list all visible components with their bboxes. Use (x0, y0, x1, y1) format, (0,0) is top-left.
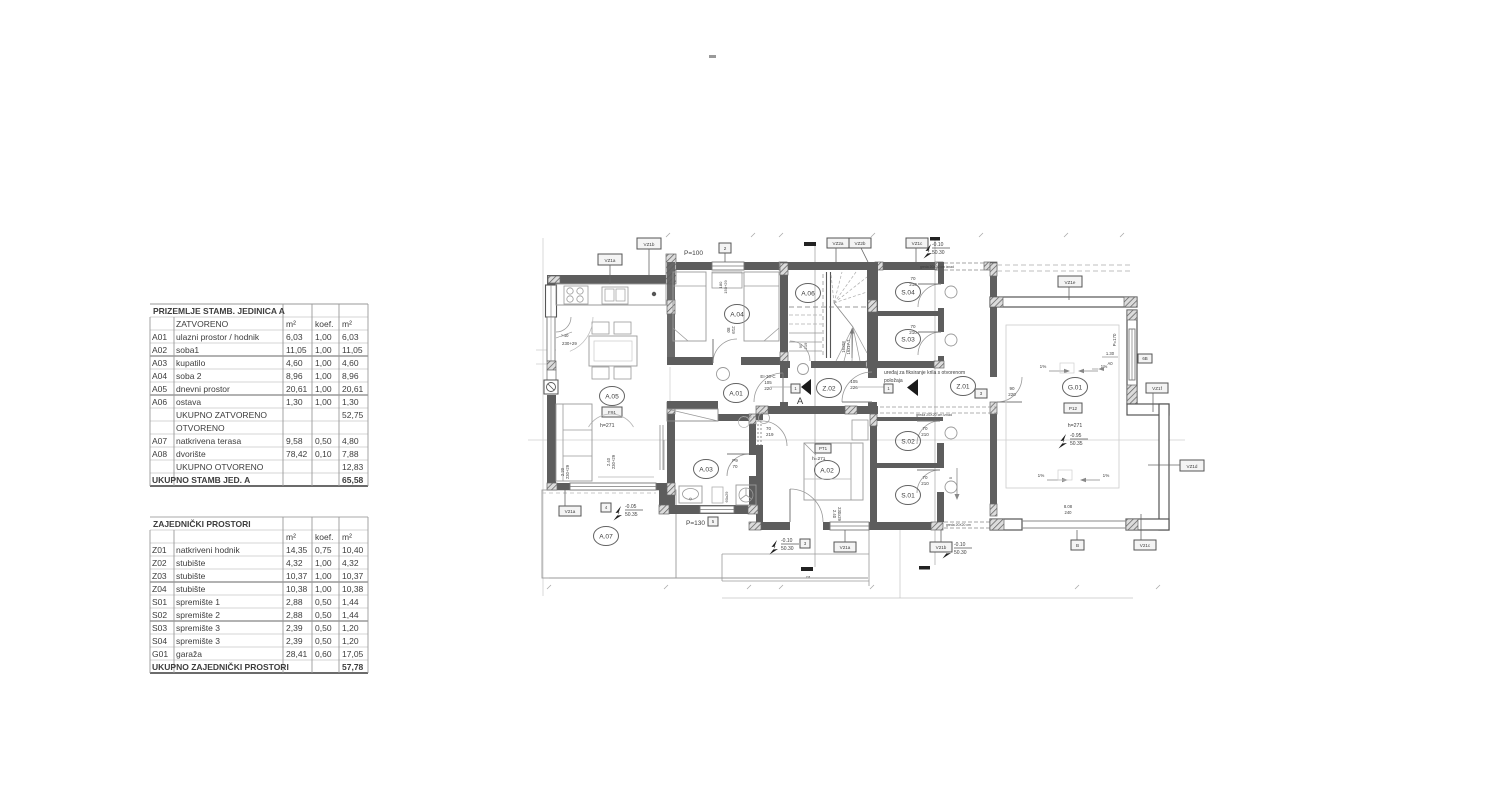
svg-text:10,38: 10,38 (286, 584, 308, 594)
svg-text:10,40: 10,40 (342, 545, 364, 555)
svg-text:220: 220 (1008, 392, 1016, 397)
svg-text:dvorište: dvorište (176, 449, 206, 459)
svg-text:0,50: 0,50 (315, 597, 332, 607)
svg-text:50.30: 50.30 (954, 550, 967, 556)
svg-text:Z.02: Z.02 (822, 385, 836, 392)
svg-text:garaža: garaža (176, 649, 202, 659)
svg-text:spremište 2: spremište 2 (176, 610, 220, 620)
svg-text:1,00: 1,00 (315, 332, 332, 342)
svg-text:65,58: 65,58 (342, 475, 364, 485)
svg-text:spremište 3: spremište 3 (176, 623, 220, 633)
svg-text:6B: 6B (1142, 356, 1147, 361)
svg-text:70: 70 (922, 475, 928, 480)
svg-text:VZ1d: VZ1d (1187, 464, 1198, 469)
svg-text:1,00: 1,00 (315, 345, 332, 355)
svg-text:UKUPNO ZAJEDNIČKI PROSTORI: UKUPNO ZAJEDNIČKI PROSTORI (152, 661, 289, 672)
svg-text:90: 90 (1009, 386, 1015, 391)
svg-text:A03: A03 (152, 358, 167, 368)
svg-text:kupatilo: kupatilo (176, 358, 206, 368)
svg-text:soba1: soba1 (176, 345, 199, 355)
svg-text:stubište: stubište (176, 571, 206, 581)
svg-text:8.08: 8.08 (1064, 504, 1073, 509)
svg-text:219: 219 (766, 432, 774, 437)
svg-text:VZ1b: VZ1b (644, 242, 655, 247)
svg-text:V21a: V21a (840, 545, 851, 550)
svg-text:S.01: S.01 (901, 492, 915, 499)
svg-text:50.30: 50.30 (932, 250, 945, 256)
svg-text:1,00: 1,00 (315, 584, 332, 594)
svg-text:1,00: 1,00 (315, 384, 332, 394)
svg-text:8,96: 8,96 (342, 371, 359, 381)
svg-text:-0.95: -0.95 (1070, 433, 1082, 439)
svg-text:P12: P12 (1069, 406, 1078, 411)
svg-text:1,00: 1,00 (315, 397, 332, 407)
svg-text:150+29: 150+29 (723, 280, 728, 294)
svg-text:70: 70 (922, 426, 928, 431)
svg-text:Z04: Z04 (152, 584, 167, 594)
svg-text:20,61: 20,61 (342, 384, 364, 394)
svg-text:226: 226 (850, 385, 858, 390)
svg-text:16x17.7: 16x17.7 (846, 339, 851, 355)
svg-text:1%: 1% (1103, 473, 1110, 478)
svg-text:PRIZEMLJE STAMB. JEDINICA A: PRIZEMLJE STAMB. JEDINICA A (153, 306, 285, 316)
svg-text:70: 70 (910, 276, 916, 281)
svg-text:S01: S01 (152, 597, 167, 607)
svg-text:0,10: 0,10 (315, 449, 332, 459)
svg-text:VZ1c: VZ1c (912, 241, 923, 246)
svg-text:4,60: 4,60 (286, 358, 303, 368)
svg-text:h=271: h=271 (812, 456, 826, 462)
svg-text:0,60: 0,60 (315, 649, 332, 659)
svg-text:G01: G01 (152, 649, 168, 659)
svg-text:VZ2a: VZ2a (833, 241, 844, 246)
svg-text:10,38: 10,38 (342, 584, 364, 594)
svg-text:S.03: S.03 (901, 336, 915, 343)
svg-text:A0: A0 (1107, 361, 1113, 366)
svg-text:EI-30-C: EI-30-C (760, 374, 775, 379)
svg-text:1,20: 1,20 (342, 623, 359, 633)
svg-text:70: 70 (766, 426, 772, 431)
svg-text:UKUPNO OTVORENO: UKUPNO OTVORENO (176, 462, 264, 472)
svg-text:OTVORENO: OTVORENO (176, 423, 225, 433)
svg-text:stubište: stubište (176, 558, 206, 568)
svg-text:koef.: koef. (315, 319, 333, 329)
svg-text:0,50: 0,50 (315, 436, 332, 446)
svg-text:50.35: 50.35 (625, 512, 638, 518)
svg-text:52,75: 52,75 (342, 410, 364, 420)
svg-text:2,39: 2,39 (286, 636, 303, 646)
svg-text:Z.01: Z.01 (956, 383, 970, 390)
svg-text:S.02: S.02 (901, 438, 915, 445)
svg-text:0,50: 0,50 (315, 623, 332, 633)
svg-text:4,32: 4,32 (286, 558, 303, 568)
svg-text:230+29: 230+29 (562, 341, 577, 346)
svg-text:m²: m² (286, 532, 296, 542)
svg-text:ulazni prostor / hodnik: ulazni prostor / hodnik (176, 332, 260, 342)
svg-text:1,00: 1,00 (315, 371, 332, 381)
svg-text:S04: S04 (152, 636, 167, 646)
svg-text:1,00: 1,00 (315, 571, 332, 581)
svg-text:0,50: 0,50 (315, 636, 332, 646)
svg-text:0,50: 0,50 (315, 610, 332, 620)
svg-text:6,03: 6,03 (286, 332, 303, 342)
svg-text:70: 70 (732, 464, 738, 469)
svg-text:4,32: 4,32 (342, 558, 359, 568)
svg-text:A.02: A.02 (820, 467, 834, 474)
svg-text:B: B (1076, 543, 1079, 548)
svg-text:1%: 1% (1040, 364, 1047, 369)
svg-text:UKUPNO ZATVORENO: UKUPNO ZATVORENO (176, 410, 267, 420)
svg-text:-0.10: -0.10 (954, 542, 966, 548)
svg-text:VZ1f: VZ1f (1152, 386, 1162, 391)
svg-text:S02: S02 (152, 610, 167, 620)
svg-text:dnevni prostor: dnevni prostor (176, 384, 230, 394)
svg-text:10,37: 10,37 (286, 571, 308, 581)
svg-text:A.06: A.06 (801, 290, 815, 297)
svg-text:PT1: PT1 (819, 446, 828, 451)
svg-text:60x29: 60x29 (724, 491, 729, 503)
svg-text:240: 240 (1065, 510, 1073, 515)
svg-text:greda 20X20 cm: greda 20X20 cm (946, 523, 971, 527)
svg-text:10,37: 10,37 (342, 571, 364, 581)
svg-text:A05: A05 (152, 384, 167, 394)
svg-text:greda 20X20 cm iznad: greda 20X20 cm iznad (916, 413, 952, 417)
svg-text:A.07: A.07 (599, 533, 613, 540)
svg-text:P9: P9 (732, 458, 738, 463)
svg-text:A.01: A.01 (729, 390, 743, 397)
svg-text:1,30: 1,30 (286, 397, 303, 407)
svg-text:17,05: 17,05 (342, 649, 364, 659)
svg-text:50.30: 50.30 (781, 546, 794, 552)
svg-text:G.01: G.01 (1068, 384, 1083, 391)
svg-text:11,05: 11,05 (286, 345, 307, 355)
svg-text:m²: m² (286, 319, 296, 329)
svg-text:ZATVORENO: ZATVORENO (176, 319, 229, 329)
svg-text:2,88: 2,88 (286, 597, 303, 607)
svg-text:VZ1e: VZ1e (1065, 280, 1076, 285)
svg-text:1,20: 1,20 (342, 636, 359, 646)
svg-text:m²: m² (342, 319, 352, 329)
svg-text:A.05: A.05 (605, 393, 619, 400)
svg-text:1,00: 1,00 (315, 558, 332, 568)
svg-text:105: 105 (764, 380, 772, 385)
svg-text:12,83: 12,83 (342, 462, 364, 472)
svg-text:1,30: 1,30 (342, 397, 359, 407)
svg-text:stubište: stubište (176, 584, 206, 594)
svg-text:VZ1a: VZ1a (605, 258, 616, 263)
svg-text:Z01: Z01 (152, 545, 167, 555)
svg-text:2,39: 2,39 (286, 623, 303, 633)
svg-text:A07: A07 (152, 436, 167, 446)
svg-text:1,00: 1,00 (315, 358, 332, 368)
svg-text:UKUPNO STAMB JED. A: UKUPNO STAMB JED. A (152, 475, 250, 485)
svg-text:V21a: V21a (565, 509, 576, 514)
svg-text:spremište 1: spremište 1 (176, 597, 220, 607)
svg-text:1,44: 1,44 (342, 610, 359, 620)
svg-text:koef.: koef. (315, 532, 333, 542)
svg-text:h=271: h=271 (600, 423, 615, 429)
svg-text:4,60: 4,60 (342, 358, 359, 368)
svg-text:S.04: S.04 (901, 289, 915, 296)
svg-text:P=130: P=130 (686, 520, 705, 527)
svg-text:V21c: V21c (1140, 543, 1151, 548)
svg-text:h=271: h=271 (1068, 423, 1083, 429)
svg-text:-0.05: -0.05 (625, 504, 637, 510)
svg-text:natkrivena terasa: natkrivena terasa (176, 436, 241, 446)
svg-text:20,61: 20,61 (286, 384, 308, 394)
svg-text:A06: A06 (152, 397, 167, 407)
svg-text:0,75: 0,75 (315, 545, 332, 555)
svg-text:m²: m² (342, 532, 352, 542)
svg-text:210: 210 (921, 481, 929, 486)
svg-text:A01: A01 (152, 332, 167, 342)
svg-text:-0.10: -0.10 (781, 538, 793, 544)
svg-text:A: A (797, 396, 804, 407)
svg-text:A.04: A.04 (730, 311, 744, 318)
svg-text:9,58: 9,58 (286, 436, 303, 446)
svg-text:Z03: Z03 (152, 571, 167, 581)
svg-text:2,88: 2,88 (286, 610, 303, 620)
svg-text:P=100: P=100 (684, 250, 703, 257)
svg-text:položaja: položaja (884, 378, 903, 384)
svg-text:natkriveni hodnik: natkriveni hodnik (176, 545, 241, 555)
svg-text:210: 210 (921, 432, 929, 437)
svg-text:57,78: 57,78 (342, 662, 364, 672)
svg-text:A04: A04 (152, 371, 167, 381)
svg-text:2.40: 2.40 (832, 510, 837, 519)
svg-text:Z02: Z02 (152, 558, 167, 568)
svg-text:1.30: 1.30 (1106, 351, 1115, 356)
svg-text:VZ2b: VZ2b (855, 241, 866, 246)
svg-text:4,80: 4,80 (342, 436, 359, 446)
svg-text:soba 2: soba 2 (176, 371, 202, 381)
svg-text:105: 105 (850, 379, 858, 384)
svg-text:greda 20X20 cm iznad: greda 20X20 cm iznad (920, 265, 954, 269)
svg-text:78,42: 78,42 (286, 449, 308, 459)
svg-text:A08: A08 (152, 449, 167, 459)
svg-text:P=170: P=170 (1112, 333, 1117, 346)
svg-text:7,88: 7,88 (342, 449, 359, 459)
svg-text:14,35: 14,35 (286, 545, 308, 555)
svg-text:A.03: A.03 (699, 466, 713, 473)
svg-text:219: 219 (731, 326, 736, 334)
svg-text:2: 2 (724, 246, 727, 251)
svg-text:ostava: ostava (176, 397, 201, 407)
svg-text:A02: A02 (152, 345, 167, 355)
svg-text:1%: 1% (1038, 473, 1045, 478)
svg-text:50.35: 50.35 (1070, 441, 1083, 447)
svg-text:230+29: 230+29 (611, 454, 616, 469)
svg-text:11,05: 11,05 (342, 345, 363, 355)
svg-text:ZAJEDNIČKI PROSTORI: ZAJEDNIČKI PROSTORI (153, 518, 251, 529)
svg-text:28,41: 28,41 (286, 649, 308, 659)
svg-text:80: 80 (726, 327, 731, 333)
svg-text:spremište 3: spremište 3 (176, 636, 220, 646)
svg-text:230x29: 230x29 (837, 507, 842, 521)
svg-text:8,96: 8,96 (286, 371, 303, 381)
svg-text:1,44: 1,44 (342, 597, 359, 607)
svg-text:230+29: 230+29 (565, 464, 570, 479)
svg-text:V21b: V21b (936, 545, 947, 550)
svg-text:70: 70 (910, 324, 916, 329)
svg-text:6,03: 6,03 (342, 332, 359, 342)
svg-text:-0.10: -0.10 (932, 242, 944, 248)
svg-text:uređaj za fiksiranje krila s o: uređaj za fiksiranje krila s otvorenom (884, 370, 965, 376)
svg-text:S03: S03 (152, 623, 167, 633)
